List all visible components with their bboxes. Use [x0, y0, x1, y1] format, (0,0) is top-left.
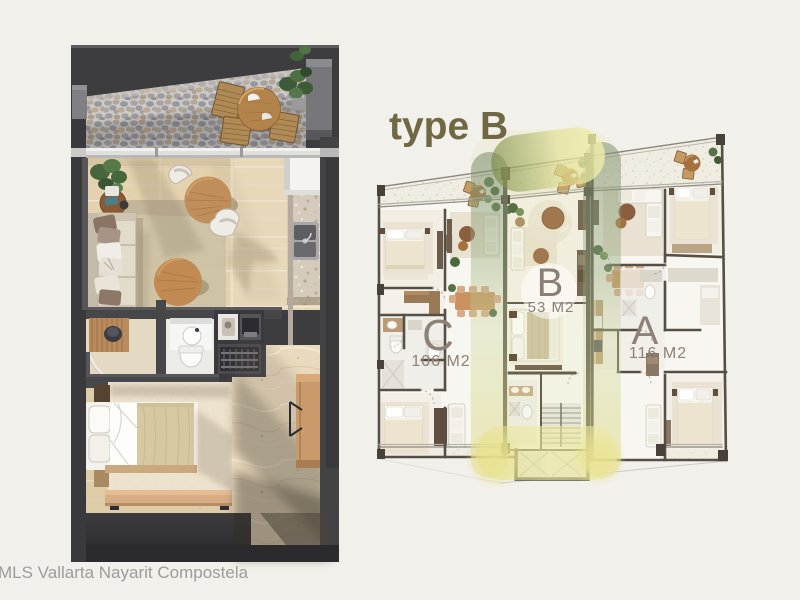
- svg-text:MLS Vallarta Nayarit Compostel: MLS Vallarta Nayarit Compostela: [0, 563, 249, 582]
- svg-text:106 M2: 106 M2: [411, 353, 470, 370]
- svg-text:53 M2: 53 M2: [528, 299, 575, 316]
- svg-text:116 M2: 116 M2: [629, 345, 687, 362]
- svg-text:type B: type B: [389, 105, 508, 148]
